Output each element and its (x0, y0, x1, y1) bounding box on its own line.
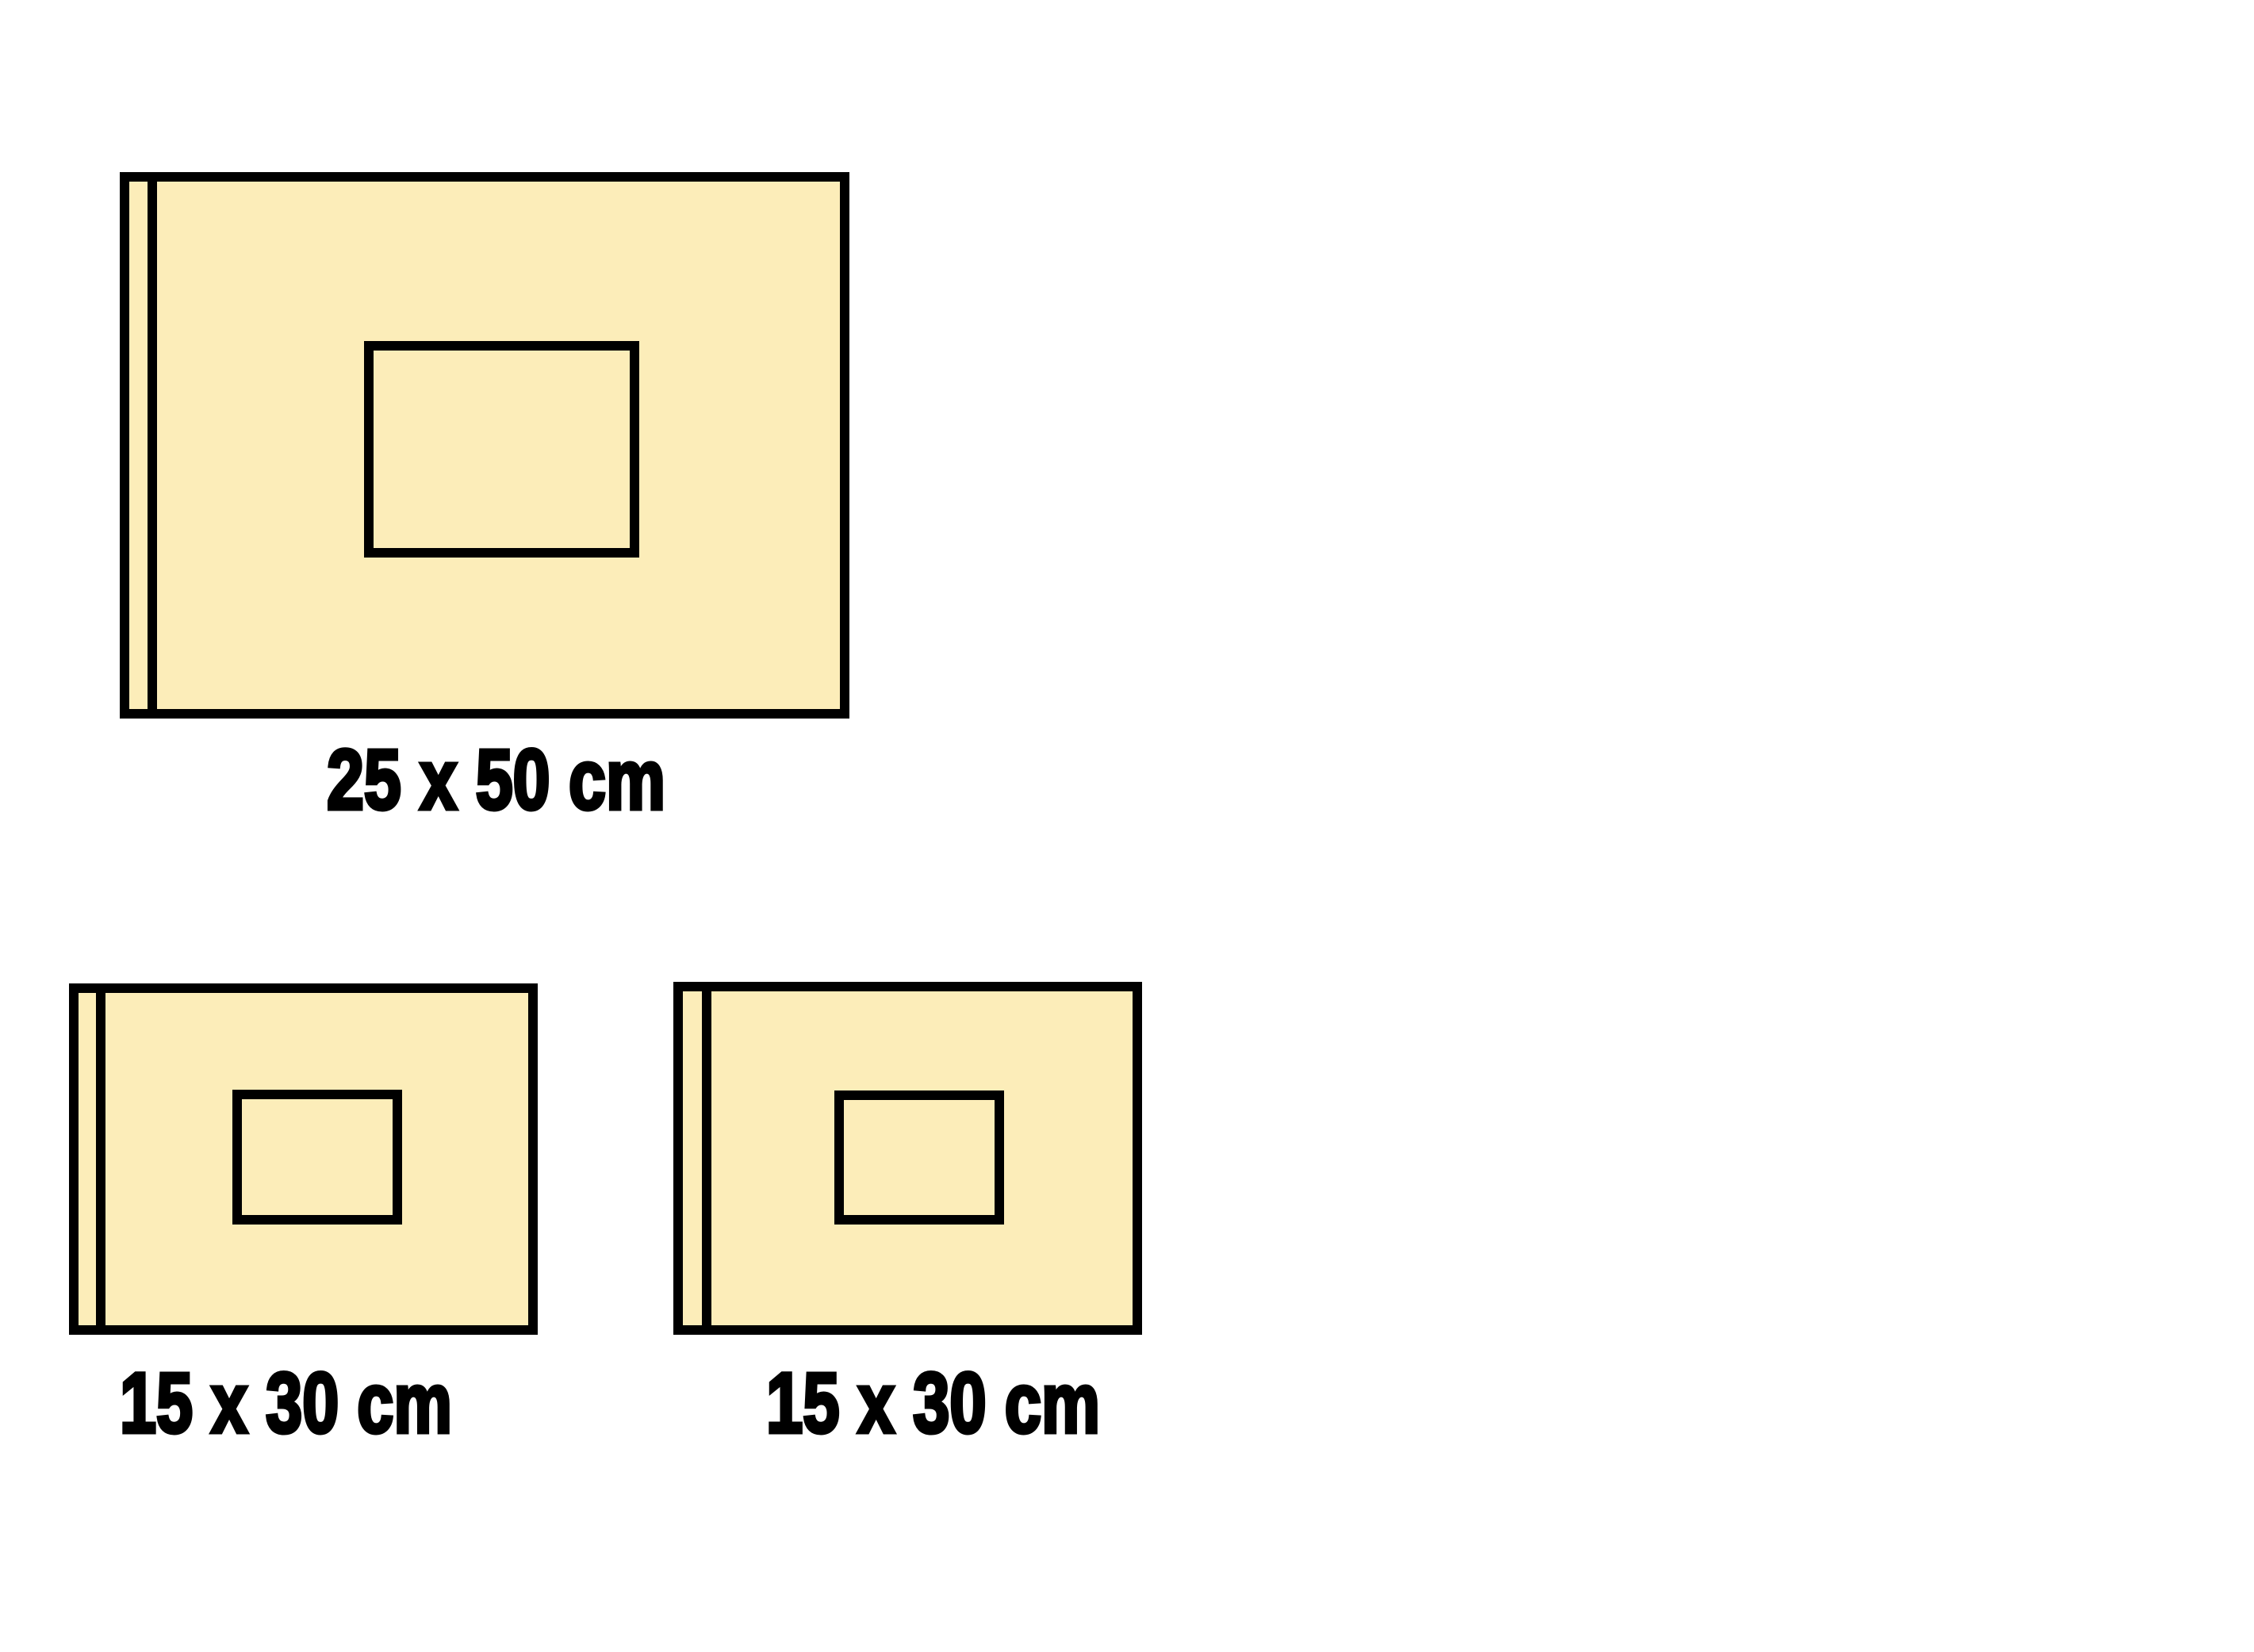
svg-text:25 x 50 cm: 25 x 50 cm (327, 731, 665, 827)
svg-text:15 x 30 cm: 15 x 30 cm (120, 1355, 452, 1451)
svg-text:15 x 30 cm: 15 x 30 cm (766, 1355, 1100, 1451)
